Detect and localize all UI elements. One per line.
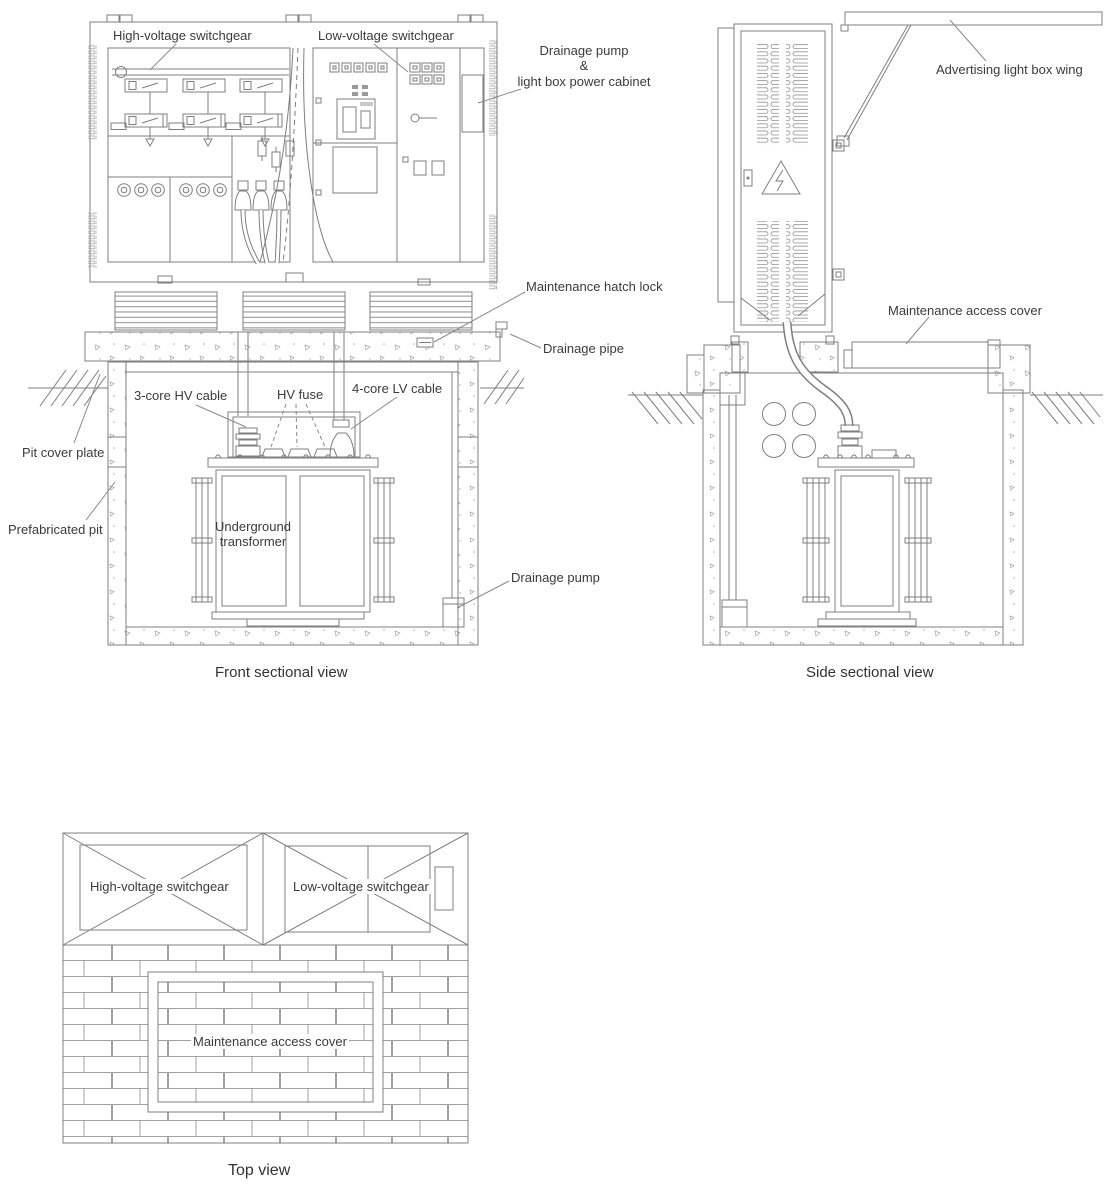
label-lv-cable: 4-core LV cable: [352, 381, 442, 396]
side-cabinet: [718, 24, 844, 332]
side-cable: [787, 322, 849, 426]
diagram-linework: [0, 0, 1110, 1193]
label-drainage-pipe: Drainage pipe: [543, 341, 624, 356]
label-maintenance-hatch-lock: Maintenance hatch lock: [526, 279, 663, 294]
label-front-hv-switchgear: High-voltage switchgear: [113, 28, 252, 43]
lv-breaker: [337, 99, 375, 139]
cable-termination-circles: [118, 184, 227, 197]
hv-cable-termination: [236, 428, 260, 456]
cable-entry-holes: [763, 403, 816, 458]
label-top-access-cover: Maintenance access cover: [191, 1034, 349, 1049]
substation-diagram: High-voltage switchgear Low-voltage swit…: [0, 0, 1110, 1193]
label-pit-cover-plate: Pit cover plate: [22, 445, 104, 460]
side-radiator-right: [905, 478, 931, 602]
side-radiator-left: [803, 478, 829, 602]
pump-lightbox-cabinet-box: [462, 75, 483, 132]
caption-front-view: Front sectional view: [215, 664, 348, 681]
caption-side-view: Side sectional view: [806, 664, 934, 681]
label-top-hv-switchgear: High-voltage switchgear: [88, 879, 231, 894]
label-front-drainage-pump: Drainage pump: [511, 570, 600, 585]
front-pit: [108, 332, 478, 645]
lv-cable-termination: [330, 420, 354, 457]
front-lv-switchgear-panel: [313, 48, 484, 262]
label-front-lv-switchgear: Low-voltage switchgear: [318, 28, 454, 43]
warning-triangle-icon: [762, 161, 800, 194]
label-prefabricated-pit: Prefabricated pit: [8, 522, 103, 537]
label-side-access-cover: Maintenance access cover: [888, 303, 1042, 318]
advertising-wing: [837, 12, 1102, 146]
label-hv-cable: 3-core HV cable: [134, 388, 227, 403]
side-drainage-pump: [722, 395, 747, 627]
label-underground-transformer: Underground transformer: [205, 519, 301, 550]
front-base: [85, 273, 507, 361]
hv-cable-plugs: [235, 181, 287, 263]
side-foundation: [687, 336, 1030, 393]
label-pump-lightbox-cabinet: Drainage pump & light box power cabinet: [513, 43, 655, 89]
key-handle: [411, 114, 437, 122]
label-top-lv-switchgear: Low-voltage switchgear: [291, 879, 431, 894]
front-view-drawing: [28, 15, 541, 645]
side-view-drawing: [628, 12, 1103, 645]
radiator-right: [374, 478, 394, 602]
hv-fuse-cartridges: [258, 136, 294, 172]
label-hv-fuse: HV fuse: [277, 387, 323, 402]
side-pit: [703, 322, 1023, 645]
label-advertising-wing: Advertising light box wing: [936, 62, 1083, 77]
side-ground: [628, 392, 1103, 424]
caption-top-view: Top view: [228, 1162, 290, 1180]
maintenance-access-cover-part: [844, 342, 988, 368]
front-hv-switchgear-panel: [108, 48, 294, 263]
side-transformer: [803, 425, 931, 626]
cable-chute: [260, 48, 333, 262]
front-ground: [28, 370, 524, 406]
